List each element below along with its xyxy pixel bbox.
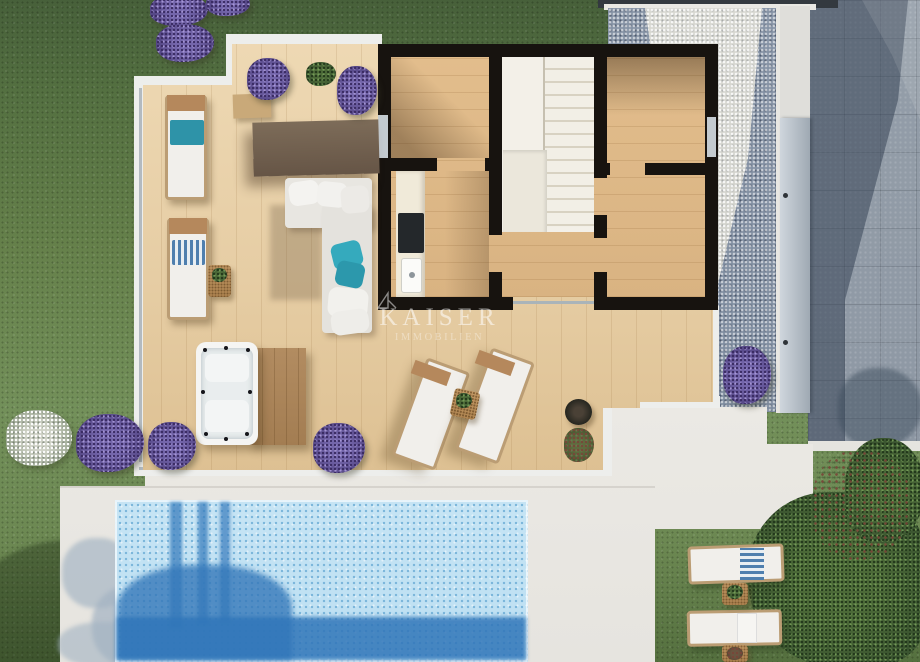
sliding-door-glass bbox=[513, 301, 597, 304]
fire-bowl bbox=[565, 399, 592, 425]
striped-towel bbox=[172, 240, 205, 265]
wall-inner-v1 bbox=[489, 44, 502, 235]
white-towel bbox=[737, 613, 757, 643]
stair-landing-cabinet bbox=[503, 150, 547, 232]
hot-tub-jet bbox=[201, 390, 205, 394]
sofa-pillow bbox=[340, 185, 370, 214]
deck-joint-line bbox=[60, 486, 655, 488]
lounger-headrest bbox=[167, 95, 205, 111]
wall-top bbox=[378, 44, 718, 57]
watermark-brand: KAISER bbox=[372, 304, 507, 332]
hot-tub-jet bbox=[248, 390, 252, 394]
window-left bbox=[378, 115, 388, 160]
glass-railing-line bbox=[139, 80, 142, 472]
lounger-headrest bbox=[169, 218, 207, 234]
staircase-treads bbox=[545, 57, 594, 227]
boundary-fence-panel bbox=[780, 118, 810, 413]
watermark-subtitle: IMMOBILIEN bbox=[372, 332, 507, 343]
wall-inner-h-right-stub bbox=[594, 163, 610, 175]
side-walkway bbox=[780, 6, 810, 118]
pool-bottom-shadow bbox=[117, 617, 526, 660]
hot-tub-jet bbox=[224, 346, 228, 350]
hot-tub-jet bbox=[204, 432, 208, 436]
hot-tub-jet bbox=[246, 348, 250, 352]
dining-table bbox=[252, 119, 379, 176]
wall-inner-v2 bbox=[594, 44, 607, 178]
teal-towel bbox=[170, 120, 204, 145]
hot-tub-seat bbox=[205, 354, 249, 382]
striped-towel bbox=[740, 548, 764, 580]
cooktop bbox=[398, 213, 424, 253]
hot-tub-platform bbox=[250, 348, 306, 445]
faucet bbox=[409, 272, 415, 278]
window-right bbox=[707, 117, 716, 157]
hot-tub-seat bbox=[205, 400, 249, 432]
watermark: KAISER IMMOBILIEN bbox=[372, 288, 507, 350]
wall-inner-v2-stub bbox=[594, 215, 607, 238]
wall-inner-v2-stub bbox=[594, 272, 607, 310]
hot-tub-jet bbox=[224, 437, 228, 441]
room-top-left-shadow bbox=[391, 57, 489, 158]
sofa-pillow bbox=[287, 179, 320, 207]
lawn-sun-lounger bbox=[687, 543, 784, 584]
room-top-right-shadow bbox=[607, 57, 705, 163]
wall-bottom-right bbox=[597, 297, 718, 310]
fence-hinge-dot bbox=[783, 193, 788, 198]
hot-tub-jet bbox=[245, 432, 249, 436]
wall-inner-h-right bbox=[645, 163, 718, 175]
fence-hinge-dot bbox=[783, 340, 788, 345]
lawn-sun-lounger bbox=[687, 609, 783, 647]
wall-right bbox=[705, 44, 718, 310]
shrub-shadow-on-pavers bbox=[838, 368, 920, 448]
wall-inner-h-left bbox=[378, 158, 437, 171]
wall-inner-h-left-stub bbox=[485, 158, 502, 171]
aerial-render-stage: KAISER IMMOBILIEN bbox=[0, 0, 920, 662]
wall-left bbox=[378, 44, 391, 310]
hot-tub-jet bbox=[203, 348, 207, 352]
